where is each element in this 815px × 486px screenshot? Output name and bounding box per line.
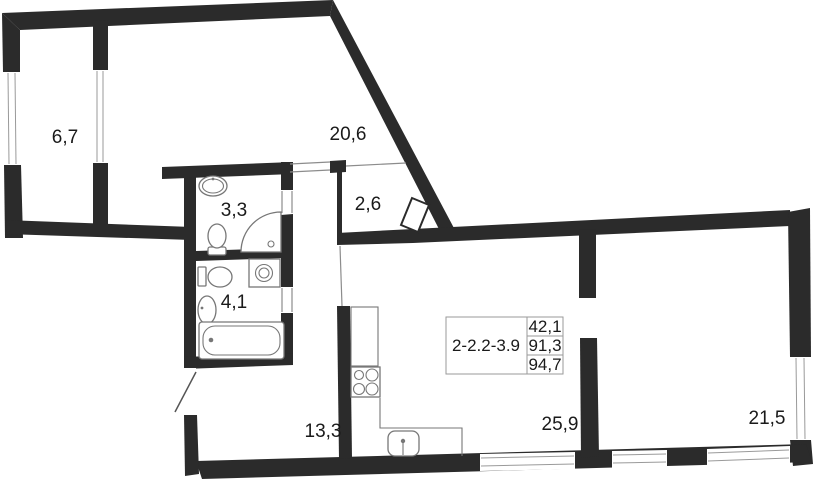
sink-icon xyxy=(199,176,227,196)
room-area-living-room: 20,6 xyxy=(330,124,367,145)
unit-area-value-3: 94,7 xyxy=(528,355,561,374)
windows xyxy=(3,70,811,471)
room-area-hallway: 13,3 xyxy=(305,421,342,442)
sink-2-icon xyxy=(198,296,216,324)
floor-plan-page: 6,7 20,6 3,3 2,6 4,1 13,3 25,9 21,5 2-2.… xyxy=(0,0,815,486)
room-area-kitchen-living: 25,9 xyxy=(542,414,579,435)
bedroom-window-1 xyxy=(612,450,667,468)
fridge-icon xyxy=(351,307,378,366)
toilet-2-icon xyxy=(198,267,232,287)
unit-area-value-1: 42,1 xyxy=(528,317,561,336)
unit-info-box: 2-2.2-3.9 42,1 91,3 94,7 xyxy=(446,317,563,374)
bedroom-window-2 xyxy=(707,446,790,466)
room-area-wardrobe: 2,6 xyxy=(355,194,381,215)
toilet-icon xyxy=(208,224,226,255)
door-openings xyxy=(175,162,429,415)
kitchen-sink-icon xyxy=(388,431,419,456)
unit-area-value-2: 91,3 xyxy=(528,336,561,355)
entrance-door xyxy=(175,368,197,415)
washing-machine-icon xyxy=(249,259,280,287)
wall-niche xyxy=(401,198,429,232)
loggia-window xyxy=(3,72,21,165)
room-area-bedroom: 21,5 xyxy=(749,408,786,429)
unit-code-label: 2-2.2-3.9 xyxy=(452,336,520,355)
room-area-loggia: 6,7 xyxy=(52,127,78,148)
loggia-partition-glazing xyxy=(93,70,108,163)
room-area-bathroom: 3,3 xyxy=(221,200,247,221)
bathtub-icon xyxy=(199,322,284,359)
kitchen-window xyxy=(480,452,575,471)
outer-walls xyxy=(2,0,813,479)
bedroom-side-window xyxy=(790,357,811,440)
room-area-bathroom-2: 4,1 xyxy=(221,292,247,313)
stove-icon xyxy=(351,367,380,397)
floor-plan: 6,7 20,6 3,3 2,6 4,1 13,3 25,9 21,5 2-2.… xyxy=(0,0,815,486)
